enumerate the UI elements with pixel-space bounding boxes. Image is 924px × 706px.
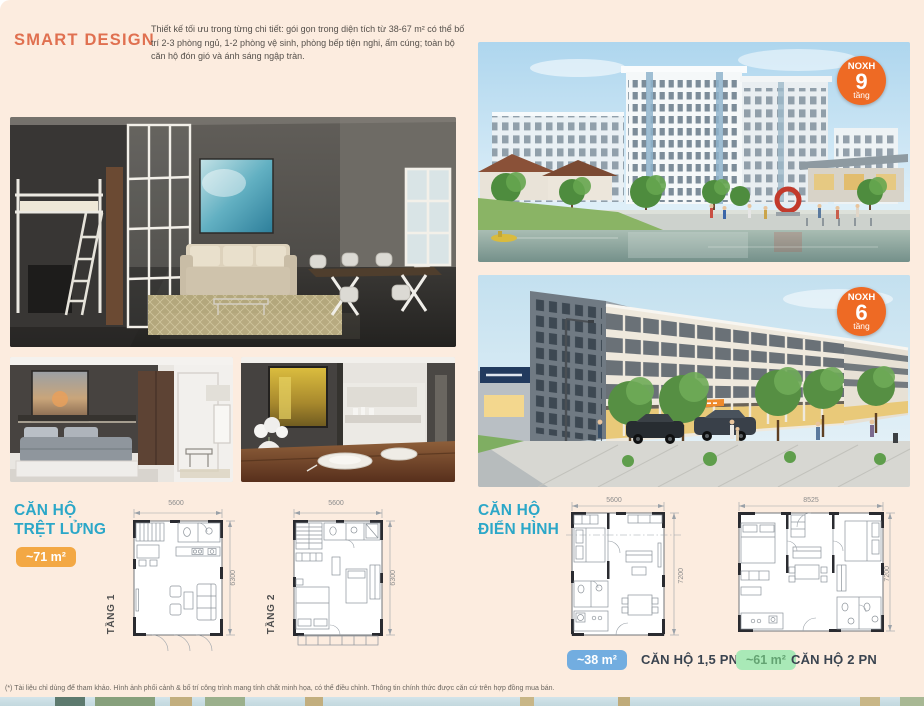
area-badge-38: ~38 m² <box>567 650 627 670</box>
strip-decor <box>55 697 85 706</box>
plan3-height-dim: 7200 <box>678 568 685 584</box>
intro-text: Thiết kế tối ưu trong từng chi tiết: gói… <box>151 23 469 64</box>
strip-decor <box>900 697 924 706</box>
strip-decor <box>618 697 630 706</box>
loft-title-line1: CĂN HỘ <box>14 501 106 520</box>
living-room-illustration <box>10 117 456 347</box>
strip-decor <box>170 697 192 706</box>
typical-title-line1: CĂN HỘ <box>478 501 559 520</box>
building-9-render: NOXH 9 tầng <box>478 42 910 262</box>
living-room-render <box>10 117 456 347</box>
bedroom-illustration <box>10 357 233 482</box>
noxh-6-unit: tầng <box>837 322 886 331</box>
kitchen-dining-render <box>241 357 455 482</box>
plan4-height-dim: 7200 <box>884 566 891 582</box>
loft-title-line2: TRỆT LỬNG <box>14 520 106 539</box>
strip-decor <box>305 697 323 706</box>
plan2-height-dim: 6300 <box>390 570 397 586</box>
floor-plan-tang-1 <box>126 507 238 657</box>
area-badge-61: ~61 m² <box>736 650 796 670</box>
typical-section-title: CĂN HỘ ĐIỂN HÌNH <box>478 501 559 539</box>
bottom-page-edge <box>0 697 924 706</box>
strip-decor <box>520 697 534 706</box>
strip-decor <box>95 697 155 706</box>
noxh-6-number: 6 <box>837 303 886 323</box>
strip-decor <box>860 697 880 706</box>
noxh-9-badge: NOXH 9 tầng <box>837 56 886 105</box>
typical-title-line2: ĐIỂN HÌNH <box>478 520 559 539</box>
kitchen-illustration <box>241 357 455 482</box>
apartment-name-2pn: CĂN HỘ 2 PN <box>791 652 877 667</box>
plan1-width-dim: 5600 <box>126 500 226 507</box>
area-badge-71: ~71 m² <box>16 547 76 567</box>
plan1-floor-label: TẦNG 1 <box>106 594 117 634</box>
noxh-9-unit: tầng <box>837 91 886 100</box>
building-6-render: NOXH 6 tầng <box>478 275 910 487</box>
noxh-6-badge: NOXH 6 tầng <box>837 287 886 336</box>
footnote: (*) Tài liệu chỉ dùng để tham khảo. Hình… <box>5 685 554 692</box>
apartment-name-1-5pn: CĂN HỘ 1,5 PN <box>641 652 738 667</box>
strip-decor <box>205 697 245 706</box>
bedroom-render <box>10 357 233 482</box>
floor-plan-1-5pn <box>564 501 684 653</box>
plan2-width-dim: 5600 <box>286 500 386 507</box>
loft-section-title: CĂN HỘ TRỆT LỬNG <box>14 501 106 539</box>
page-title: SMART DESIGN <box>14 31 155 50</box>
noxh-9-number: 9 <box>837 72 886 92</box>
plan1-height-dim: 6300 <box>230 570 237 586</box>
plan2-floor-label: TẦNG 2 <box>266 594 277 634</box>
floor-plan-2pn <box>733 501 895 651</box>
floor-plan-tang-2 <box>286 507 398 657</box>
brochure-page: SMART DESIGN Thiết kế tối ưu trong từng … <box>0 0 924 706</box>
